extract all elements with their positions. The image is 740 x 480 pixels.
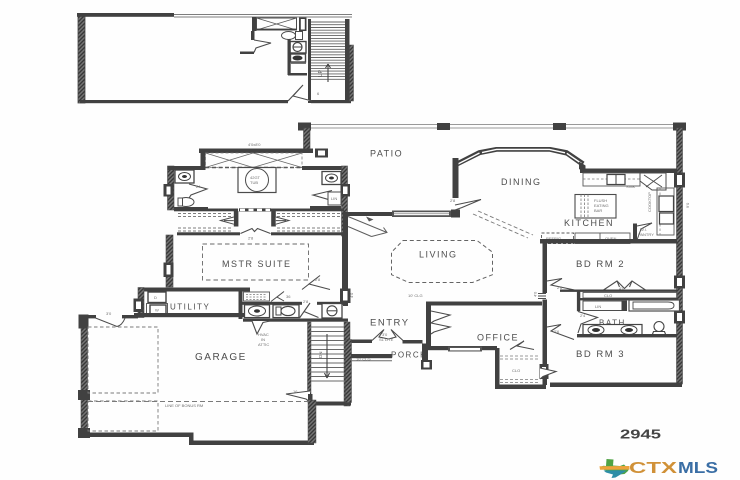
svg-text:4'0: 4'0 <box>349 292 354 298</box>
svg-text:2'6: 2'6 <box>554 329 560 334</box>
svg-text:UP: UP <box>318 69 324 77</box>
svg-text:OFFICE: OFFICE <box>477 333 519 343</box>
svg-text:CLO: CLO <box>512 368 520 373</box>
svg-text:BD RM 2: BD RM 2 <box>576 259 625 270</box>
svg-text:BD RM 3: BD RM 3 <box>576 349 625 360</box>
svg-text:DN: DN <box>318 352 323 359</box>
svg-text:MSTR SUITE: MSTR SUITE <box>222 259 292 269</box>
svg-text:LIVING: LIVING <box>419 250 458 260</box>
svg-text:2'8: 2'8 <box>248 236 254 241</box>
svg-text:SL LITE: SL LITE <box>379 337 394 342</box>
svg-text:BAR: BAR <box>594 208 602 213</box>
svg-text:LIN: LIN <box>331 196 337 201</box>
svg-text:KITCHEN: KITCHEN <box>564 218 614 228</box>
svg-text:COOKTOP: COOKTOP <box>647 192 652 212</box>
svg-text:2'8: 2'8 <box>450 198 456 203</box>
svg-text:4'0x8'0: 4'0x8'0 <box>248 142 261 147</box>
svg-text:PANTRY: PANTRY <box>638 232 654 237</box>
svg-text:16: 16 <box>293 389 298 394</box>
svg-text:GARAGE: GARAGE <box>195 352 247 363</box>
svg-text:PORCH: PORCH <box>391 351 427 360</box>
svg-text:CTX: CTX <box>629 460 678 477</box>
svg-text:TUB: TUB <box>250 180 258 185</box>
svg-text:D: D <box>154 295 157 300</box>
svg-text:CLO: CLO <box>604 293 612 298</box>
svg-text:LINE OF BONUS RM: LINE OF BONUS RM <box>165 403 203 408</box>
svg-text:LIN: LIN <box>595 304 601 309</box>
svg-text:2'6: 2'6 <box>557 285 563 290</box>
svg-text:DINING: DINING <box>501 177 542 187</box>
svg-text:2'8: 2'8 <box>303 299 309 304</box>
svg-text:W: W <box>155 308 159 313</box>
svg-text:PATIO: PATIO <box>370 149 403 159</box>
svg-text:24: 24 <box>196 184 201 189</box>
svg-text:4'0: 4'0 <box>533 291 538 297</box>
svg-text:2'8: 2'8 <box>315 277 321 282</box>
svg-text:UTILITY: UTILITY <box>170 303 210 312</box>
svg-text:2945: 2945 <box>620 428 661 442</box>
svg-text:ATTIC: ATTIC <box>258 342 269 347</box>
svg-text:10' CLG: 10' CLG <box>356 357 371 362</box>
svg-text:2'4: 2'4 <box>580 313 586 318</box>
svg-text:SINK: SINK <box>626 184 636 189</box>
svg-text:3'0: 3'0 <box>106 311 112 316</box>
svg-text:ENTRY: ENTRY <box>370 318 410 329</box>
svg-text:10' CLG: 10' CLG <box>408 293 423 298</box>
svg-text:MLS: MLS <box>678 460 718 477</box>
svg-text:9'0: 9'0 <box>685 202 690 208</box>
svg-text:36: 36 <box>286 294 291 299</box>
